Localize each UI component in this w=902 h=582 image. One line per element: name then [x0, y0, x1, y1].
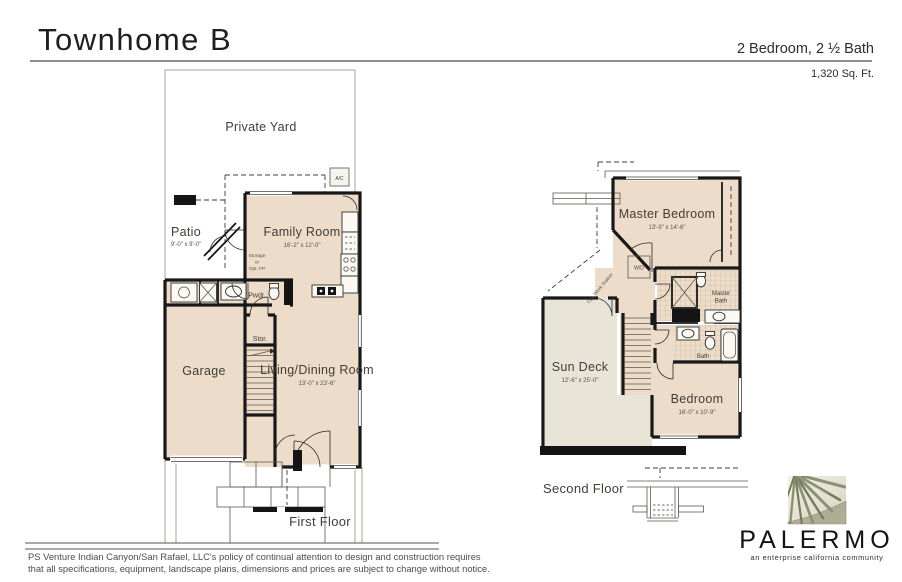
label-garage: Garage: [182, 364, 226, 378]
trellis: [553, 193, 620, 204]
bathtub: [721, 329, 738, 361]
counter-2: [341, 276, 358, 293]
disclaimer-line-1: PS Venture Indian Canyon/San Rafael, LLC…: [28, 551, 481, 562]
refrigerator: [342, 212, 358, 232]
ac-label: A/C: [335, 176, 344, 182]
label-sun-deck: Sun Deck: [552, 360, 609, 374]
ac-unit: A/C: [330, 168, 349, 186]
label-bedroom: Bedroom: [671, 392, 724, 406]
label-bath: Bath: [697, 354, 709, 360]
logo-tagline: an enterprise california community: [751, 553, 884, 562]
dims-master-bedroom: 13'-9" x 14'-6": [649, 225, 686, 231]
dims-family-room: 16'-2" x 12'-0": [284, 243, 321, 249]
spec-text: 2 Bedroom, 2 ½ Bath: [737, 41, 874, 57]
dims-bedroom: 16'-0" x 10'-9": [679, 410, 716, 416]
porch-steps: [217, 462, 330, 543]
floorplan-sheet: Townhome B 2 Bedroom, 2 ½ Bath 1,320 Sq.…: [0, 0, 902, 582]
kitchen-island-sink: [312, 285, 343, 297]
garage-floor-fill: [165, 305, 245, 460]
label-private-yard: Private Yard: [225, 120, 296, 134]
lot-lines: [165, 459, 362, 543]
powder-sink: [226, 286, 242, 297]
entry-marker: [293, 450, 302, 471]
svg-text:Bath: Bath: [715, 299, 727, 305]
svg-text:Storage: Storage: [249, 253, 266, 259]
page-title: Townhome B: [38, 22, 232, 57]
dims-living-dining: 13'-0" x 23'-6": [299, 381, 336, 387]
dims-sun-deck: 12'-6" x 25'-0": [562, 378, 599, 384]
caption-first-floor: First Floor: [289, 514, 351, 529]
entry-below: [627, 468, 748, 521]
bath-sink: [682, 329, 694, 338]
patio-door: [204, 223, 245, 260]
header: Townhome B 2 Bedroom, 2 ½ Bath 1,320 Sq.…: [30, 22, 874, 80]
label-living-dining: Living/Dining Room: [260, 363, 374, 377]
sqft-text: 1,320 Sq. Ft.: [811, 68, 874, 80]
svg-text:Opt. FP: Opt. FP: [249, 266, 266, 272]
svg-text:or: or: [255, 260, 260, 266]
stair-floor-fill: [620, 313, 655, 395]
master-sink: [713, 312, 725, 321]
deck-bottom-wall: [540, 446, 686, 455]
palermo-logo: PALERMO an enterprise california communi…: [739, 474, 894, 562]
label-patio: Patio: [171, 225, 201, 239]
footer: PS Venture Indian Canyon/San Rafael, LLC…: [25, 474, 895, 574]
master-toilet: [697, 273, 706, 288]
first-floor-plan: A/C: [165, 70, 374, 543]
powder-toilet: [269, 284, 279, 300]
strip-wall-block: [284, 280, 293, 305]
second-floor-plan: W/D: [540, 162, 748, 521]
dims-patio: 9'-0" x 9'-0": [171, 242, 201, 248]
caption-second-floor: Second Floor: [543, 481, 624, 496]
label-powder: Pwdr.: [248, 293, 266, 300]
label-stor: Stor.: [253, 336, 267, 343]
sundeck-fill-2: [617, 395, 652, 448]
master-floor-fill: [613, 178, 740, 268]
svg-text:Master: Master: [712, 291, 730, 297]
label-wd: W/D: [634, 266, 644, 272]
bath-toilet: [705, 332, 715, 350]
stove: [341, 254, 358, 276]
logo-wordmark: PALERMO: [739, 526, 894, 554]
label-family-room: Family Room: [264, 225, 341, 239]
washer: [171, 283, 197, 302]
label-master-bedroom: Master Bedroom: [619, 207, 716, 221]
floorplan-canvas: Townhome B 2 Bedroom, 2 ½ Bath 1,320 Sq.…: [0, 0, 902, 582]
disclaimer-line-2: that all specifications, equipment, land…: [28, 563, 490, 574]
yard-gate: [174, 195, 196, 205]
